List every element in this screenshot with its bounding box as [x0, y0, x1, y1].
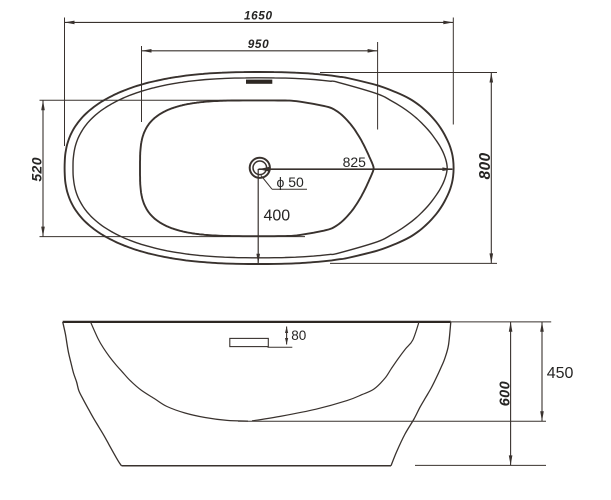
svg-text:950: 950	[248, 37, 269, 51]
svg-text:520: 520	[29, 157, 45, 182]
svg-text:800: 800	[477, 152, 494, 179]
svg-text:ϕ 50: ϕ 50	[277, 174, 305, 190]
svg-text:825: 825	[343, 154, 367, 170]
svg-text:80: 80	[291, 328, 306, 343]
svg-text:600: 600	[498, 381, 514, 406]
svg-text:1650: 1650	[244, 9, 273, 23]
svg-text:400: 400	[264, 207, 291, 224]
svg-text:450: 450	[547, 365, 574, 382]
